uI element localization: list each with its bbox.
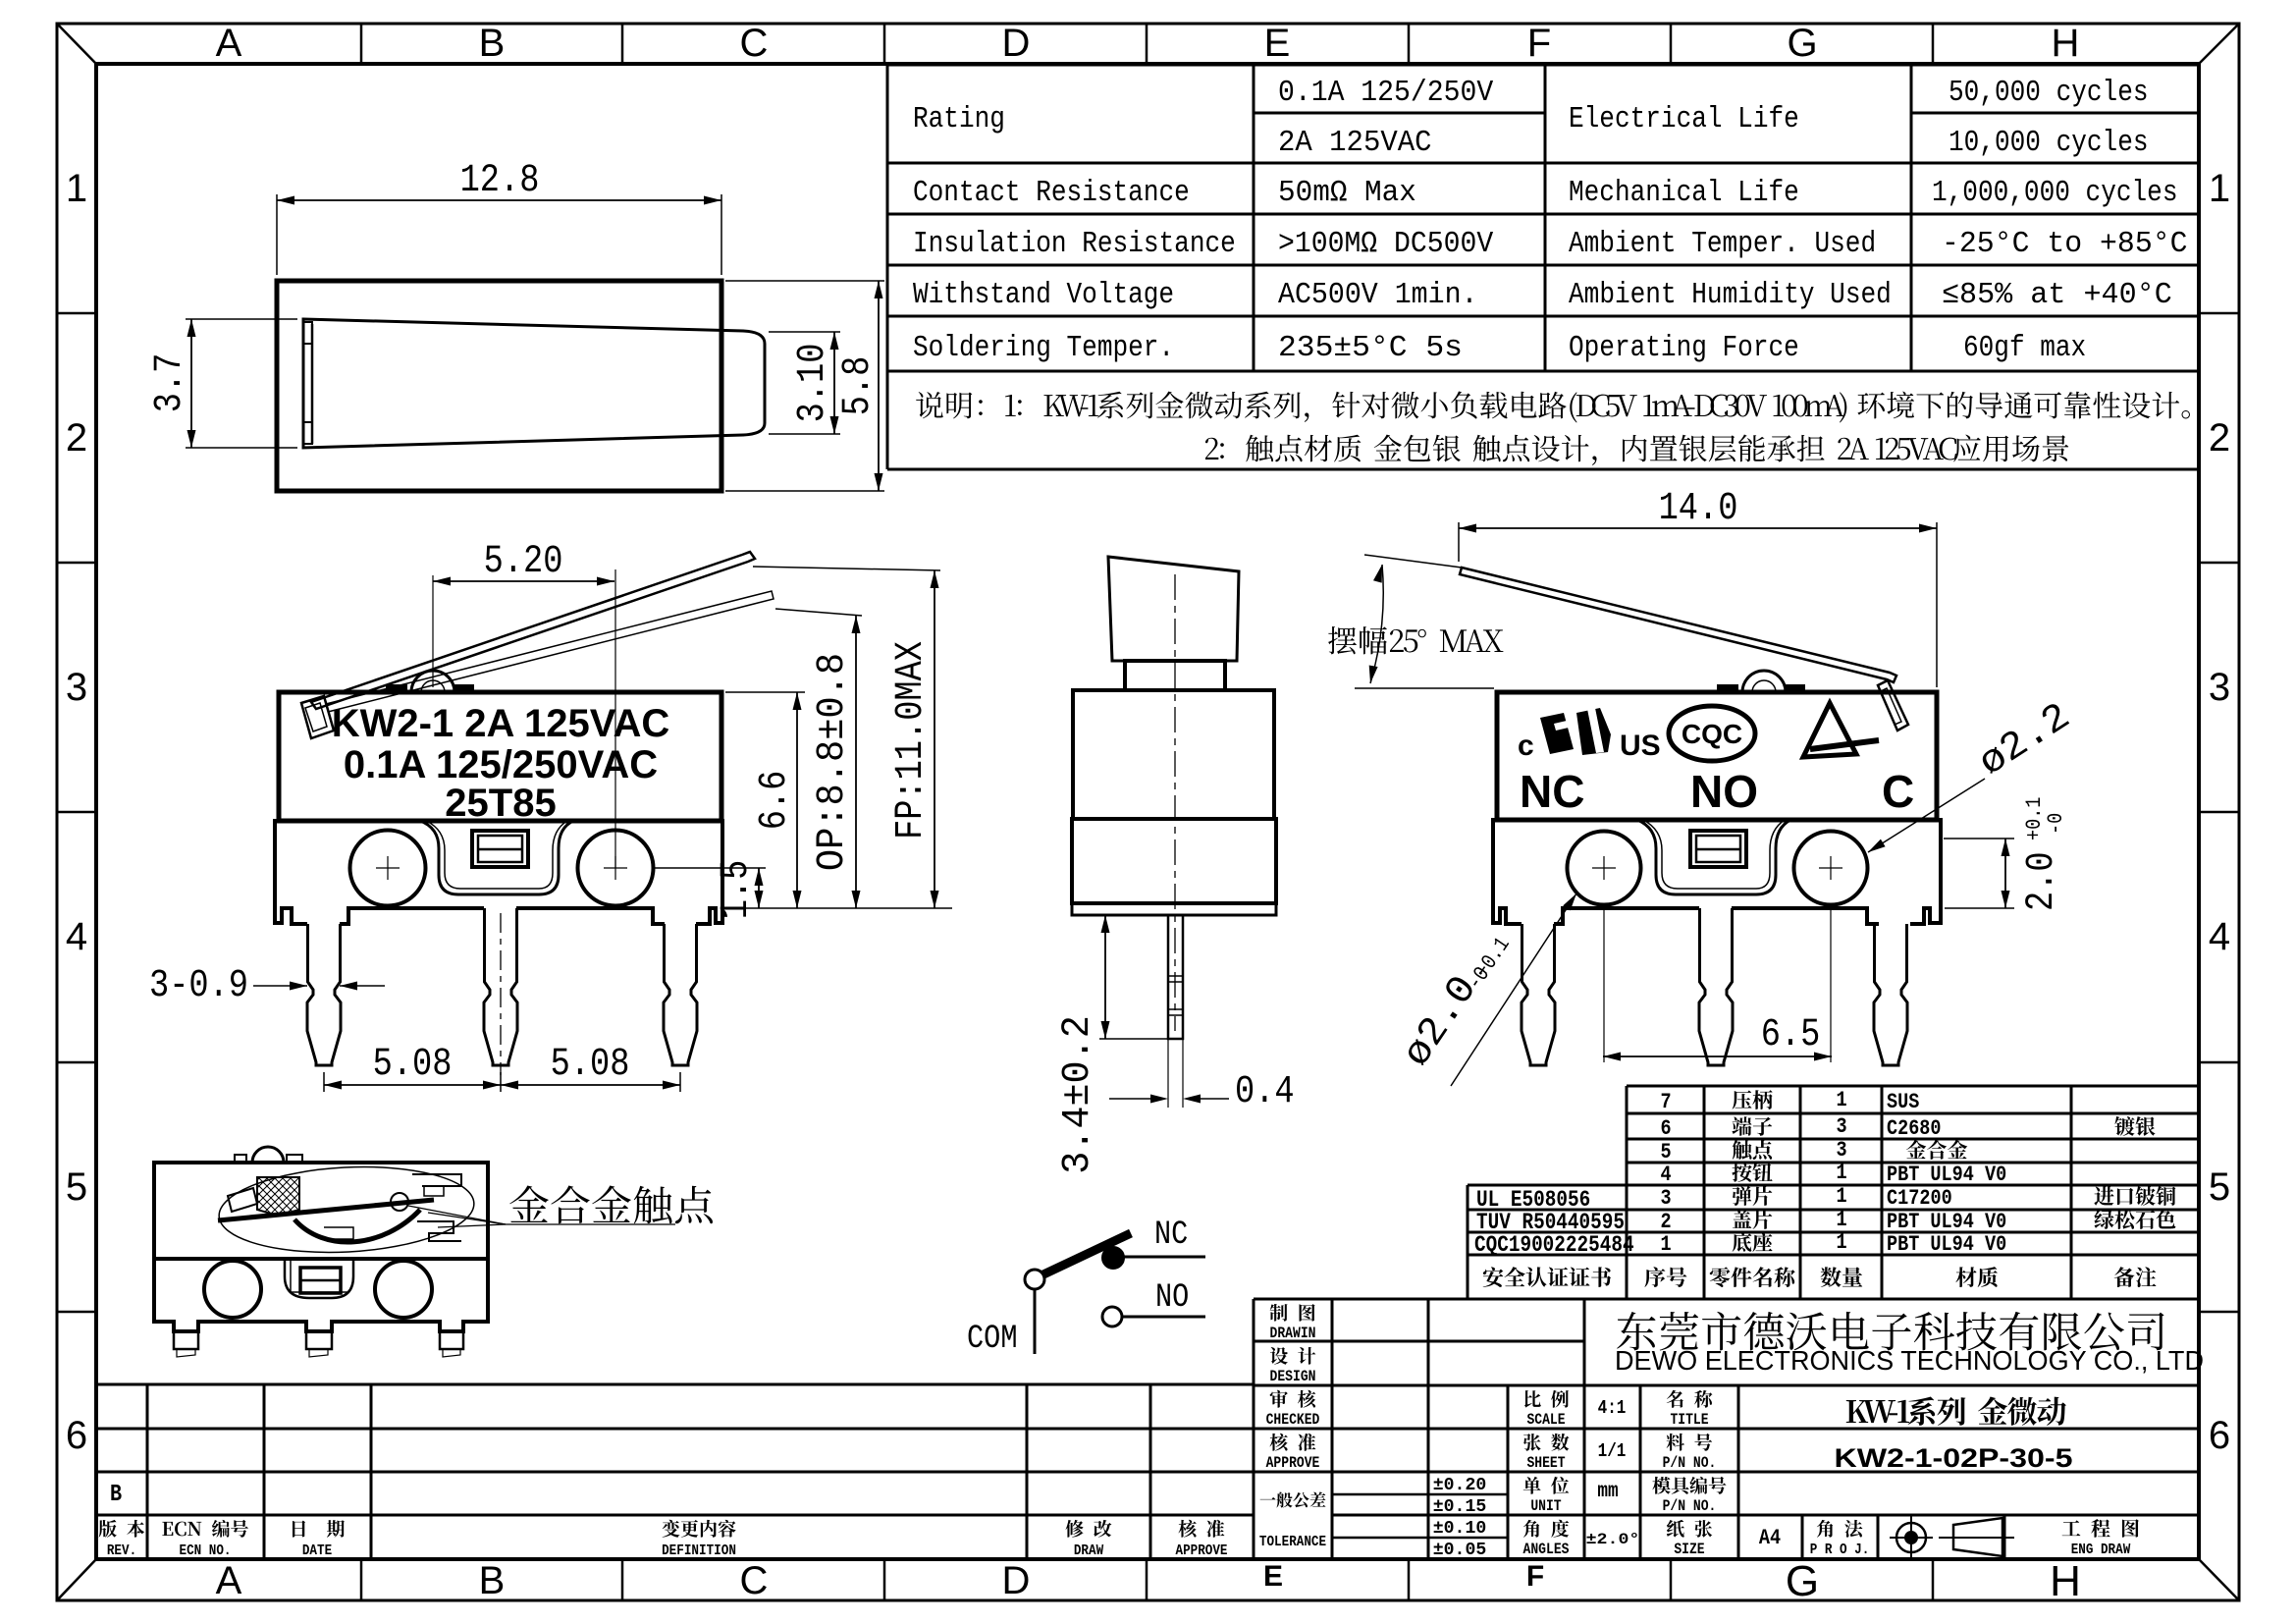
svg-text:A: A — [216, 22, 242, 65]
svg-text:APPROVE: APPROVE — [1266, 1454, 1320, 1472]
svg-text:P/N NO.: P/N NO. — [1663, 1454, 1717, 1472]
svg-text:1: 1 — [1836, 1208, 1846, 1232]
svg-text:2A 125VAC: 2A 125VAC — [1278, 126, 1432, 160]
svg-text:TITLE: TITLE — [1670, 1411, 1708, 1429]
svg-text:PBT UL94 V0: PBT UL94 V0 — [1887, 1163, 2006, 1187]
svg-text:C2680: C2680 — [1887, 1116, 1942, 1141]
svg-text:0.4: 0.4 — [1235, 1070, 1295, 1114]
svg-text:±0.05: ±0.05 — [1433, 1541, 1487, 1560]
svg-text:1: 1 — [1836, 1184, 1846, 1209]
svg-text:Soldering Temper.: Soldering Temper. — [913, 331, 1174, 365]
svg-text:2.0: 2.0 — [2020, 851, 2064, 911]
svg-text:DRAWIN: DRAWIN — [1270, 1325, 1316, 1342]
svg-text:ANGLES: ANGLES — [1523, 1541, 1570, 1558]
svg-text:B: B — [479, 22, 506, 65]
svg-text:NC: NC — [1520, 766, 1584, 817]
svg-text:±0.20: ±0.20 — [1433, 1476, 1487, 1495]
svg-text:3: 3 — [2209, 666, 2230, 709]
svg-text:AC500V 1min.: AC500V 1min. — [1278, 278, 1478, 312]
svg-text:3.7: 3.7 — [148, 353, 192, 413]
svg-text:Insulation Resistance: Insulation Resistance — [913, 227, 1236, 261]
svg-text:DATE: DATE — [302, 1543, 332, 1559]
svg-text:P/N NO.: P/N NO. — [1663, 1497, 1717, 1515]
svg-text:1,000,000 cycles: 1,000,000 cycles — [1932, 176, 2178, 210]
svg-text:DRAW: DRAW — [1074, 1543, 1103, 1559]
svg-text:3.10: 3.10 — [791, 344, 835, 423]
svg-text:>100MΩ DC500V: >100MΩ DC500V — [1278, 227, 1494, 261]
svg-text:6.5: 6.5 — [1761, 1013, 1821, 1057]
svg-text:ECN NO.: ECN NO. — [180, 1543, 232, 1559]
svg-text:3: 3 — [1836, 1114, 1846, 1139]
svg-text:1: 1 — [1836, 1230, 1846, 1255]
svg-text:SHEET: SHEET — [1526, 1454, 1565, 1472]
svg-text:1: 1 — [1836, 1088, 1846, 1112]
svg-text:TOLERANCE: TOLERANCE — [1259, 1534, 1326, 1550]
svg-text:1: 1 — [1660, 1232, 1671, 1257]
svg-text:DESIGN: DESIGN — [1270, 1368, 1316, 1385]
svg-text:±0.10: ±0.10 — [1433, 1519, 1487, 1539]
svg-text:COM: COM — [967, 1321, 1018, 1358]
svg-text:A4: A4 — [1759, 1526, 1781, 1550]
svg-text:PBT UL94 V0: PBT UL94 V0 — [1887, 1232, 2006, 1257]
svg-text:-0: -0 — [2044, 813, 2068, 835]
svg-text:4: 4 — [1660, 1163, 1671, 1187]
svg-text:0.1A 125/250VAC: 0.1A 125/250VAC — [344, 743, 658, 786]
svg-text:2: 2 — [2209, 416, 2230, 460]
svg-text:3: 3 — [1836, 1138, 1846, 1163]
svg-text:OP:8.8±0.8: OP:8.8±0.8 — [811, 653, 855, 871]
svg-text:10,000 cycles: 10,000 cycles — [1949, 126, 2149, 160]
svg-text:Electrical Life: Electrical Life — [1569, 102, 1799, 136]
svg-text:4:1: 4:1 — [1598, 1397, 1627, 1419]
svg-text:5.20: 5.20 — [484, 540, 563, 584]
svg-text:3.4±0.2: 3.4±0.2 — [1056, 1015, 1100, 1174]
svg-text:C: C — [1882, 766, 1914, 817]
svg-text:25T85: 25T85 — [445, 782, 556, 825]
svg-text:Ambient Humidity Used: Ambient Humidity Used — [1569, 278, 1892, 312]
svg-text:D: D — [1002, 1559, 1031, 1602]
svg-text:G: G — [1786, 1557, 1819, 1605]
svg-text:B: B — [479, 1559, 506, 1602]
svg-text:C17200: C17200 — [1887, 1186, 1952, 1211]
svg-text:APPROVE: APPROVE — [1176, 1543, 1228, 1559]
svg-text:PBT UL94 V0: PBT UL94 V0 — [1887, 1210, 2006, 1234]
svg-text:NO: NO — [1690, 766, 1758, 817]
svg-text:UNIT: UNIT — [1530, 1497, 1561, 1515]
svg-text:14.0: 14.0 — [1659, 487, 1738, 531]
svg-text:P R O J.: P R O J. — [1810, 1542, 1870, 1558]
svg-text:B: B — [110, 1482, 122, 1508]
svg-text:SIZE: SIZE — [1674, 1541, 1704, 1558]
svg-text:Rating: Rating — [913, 102, 1005, 136]
svg-text:H: H — [2050, 1557, 2081, 1605]
svg-text:5: 5 — [2209, 1165, 2230, 1209]
svg-text:7: 7 — [1660, 1090, 1671, 1114]
svg-text:KW2-1 2A 125VAC: KW2-1 2A 125VAC — [332, 702, 670, 745]
svg-text:2: 2 — [66, 416, 87, 460]
svg-text:DEFINITION: DEFINITION — [662, 1543, 736, 1559]
svg-text:H: H — [2052, 22, 2080, 65]
svg-text:Contact Resistance: Contact Resistance — [913, 176, 1190, 210]
svg-text:C: C — [740, 1559, 769, 1602]
svg-text:Ambient Temper. Used: Ambient Temper. Used — [1569, 227, 1876, 261]
svg-text:1: 1 — [66, 167, 87, 210]
svg-text:6: 6 — [1660, 1116, 1671, 1141]
svg-text:≤85% at +40°C: ≤85% at +40°C — [1942, 278, 2172, 312]
svg-text:1.5: 1.5 — [715, 860, 759, 920]
svg-text:REV.: REV. — [107, 1543, 136, 1559]
svg-text:5: 5 — [1660, 1140, 1671, 1164]
svg-text:G: G — [1787, 22, 1817, 65]
svg-text:KW2-1-02P-30-5: KW2-1-02P-30-5 — [1835, 1443, 2073, 1473]
svg-text:60gf max: 60gf max — [1963, 331, 2086, 365]
svg-text:-25°C to +85°C: -25°C to +85°C — [1942, 227, 2188, 261]
svg-text:F: F — [1526, 1560, 1544, 1593]
svg-text:c: c — [1518, 730, 1534, 762]
svg-text:SCALE: SCALE — [1526, 1411, 1565, 1429]
svg-text:1: 1 — [1836, 1161, 1846, 1185]
svg-text:5.8: 5.8 — [836, 356, 881, 416]
svg-text:CQC19002225484: CQC19002225484 — [1474, 1232, 1634, 1258]
svg-text:50mΩ Max: 50mΩ Max — [1278, 176, 1416, 210]
svg-text:NC: NC — [1154, 1217, 1188, 1254]
svg-text:6: 6 — [66, 1414, 87, 1457]
svg-text:CQC: CQC — [1682, 719, 1742, 749]
svg-text:DEWO ELECTRONICS TECHNOLOGY CO: DEWO ELECTRONICS TECHNOLOGY CO., LTD — [1615, 1345, 2204, 1376]
svg-text:4: 4 — [66, 915, 87, 958]
svg-text:Mechanical Life: Mechanical Life — [1569, 176, 1799, 210]
svg-text:Operating Force: Operating Force — [1569, 331, 1799, 365]
svg-text:5: 5 — [66, 1165, 87, 1209]
svg-text:±2.0°: ±2.0° — [1586, 1531, 1640, 1548]
svg-text:2: 2 — [1660, 1210, 1671, 1234]
svg-text:±0.15: ±0.15 — [1433, 1497, 1487, 1517]
svg-text:ENG DRAW: ENG DRAW — [2071, 1542, 2131, 1558]
svg-text:6.6: 6.6 — [753, 771, 797, 831]
svg-text:50,000 cycles: 50,000 cycles — [1949, 76, 2149, 110]
svg-text:235±5°C 5s: 235±5°C 5s — [1278, 331, 1463, 365]
svg-text:3: 3 — [1660, 1186, 1671, 1211]
svg-text:mm: mm — [1597, 1481, 1618, 1503]
svg-text:1/1: 1/1 — [1598, 1440, 1627, 1462]
svg-text:E: E — [1263, 1560, 1283, 1593]
svg-text:5.08: 5.08 — [373, 1043, 453, 1087]
svg-text:FP:11.0MAX: FP:11.0MAX — [889, 641, 934, 839]
svg-text:0.1A 125/250V: 0.1A 125/250V — [1278, 76, 1494, 110]
svg-text:E: E — [1264, 22, 1291, 65]
svg-text:SUS: SUS — [1887, 1090, 1919, 1114]
svg-text:F: F — [1527, 22, 1551, 65]
svg-text:3: 3 — [66, 666, 87, 709]
svg-text:5.08: 5.08 — [551, 1043, 630, 1087]
svg-text:3-0.9: 3-0.9 — [149, 964, 248, 1008]
svg-text:US: US — [1620, 730, 1661, 762]
svg-text:CHECKED: CHECKED — [1266, 1411, 1320, 1429]
svg-text:6: 6 — [2209, 1414, 2230, 1457]
svg-text:NO: NO — [1155, 1279, 1189, 1317]
svg-text:D: D — [1002, 22, 1031, 65]
svg-text:1: 1 — [2209, 167, 2230, 210]
svg-text:A: A — [216, 1559, 242, 1602]
svg-text:C: C — [740, 22, 769, 65]
svg-text:12.8: 12.8 — [460, 159, 540, 203]
svg-text:4: 4 — [2209, 915, 2230, 958]
svg-text:Withstand Voltage: Withstand Voltage — [913, 278, 1174, 312]
